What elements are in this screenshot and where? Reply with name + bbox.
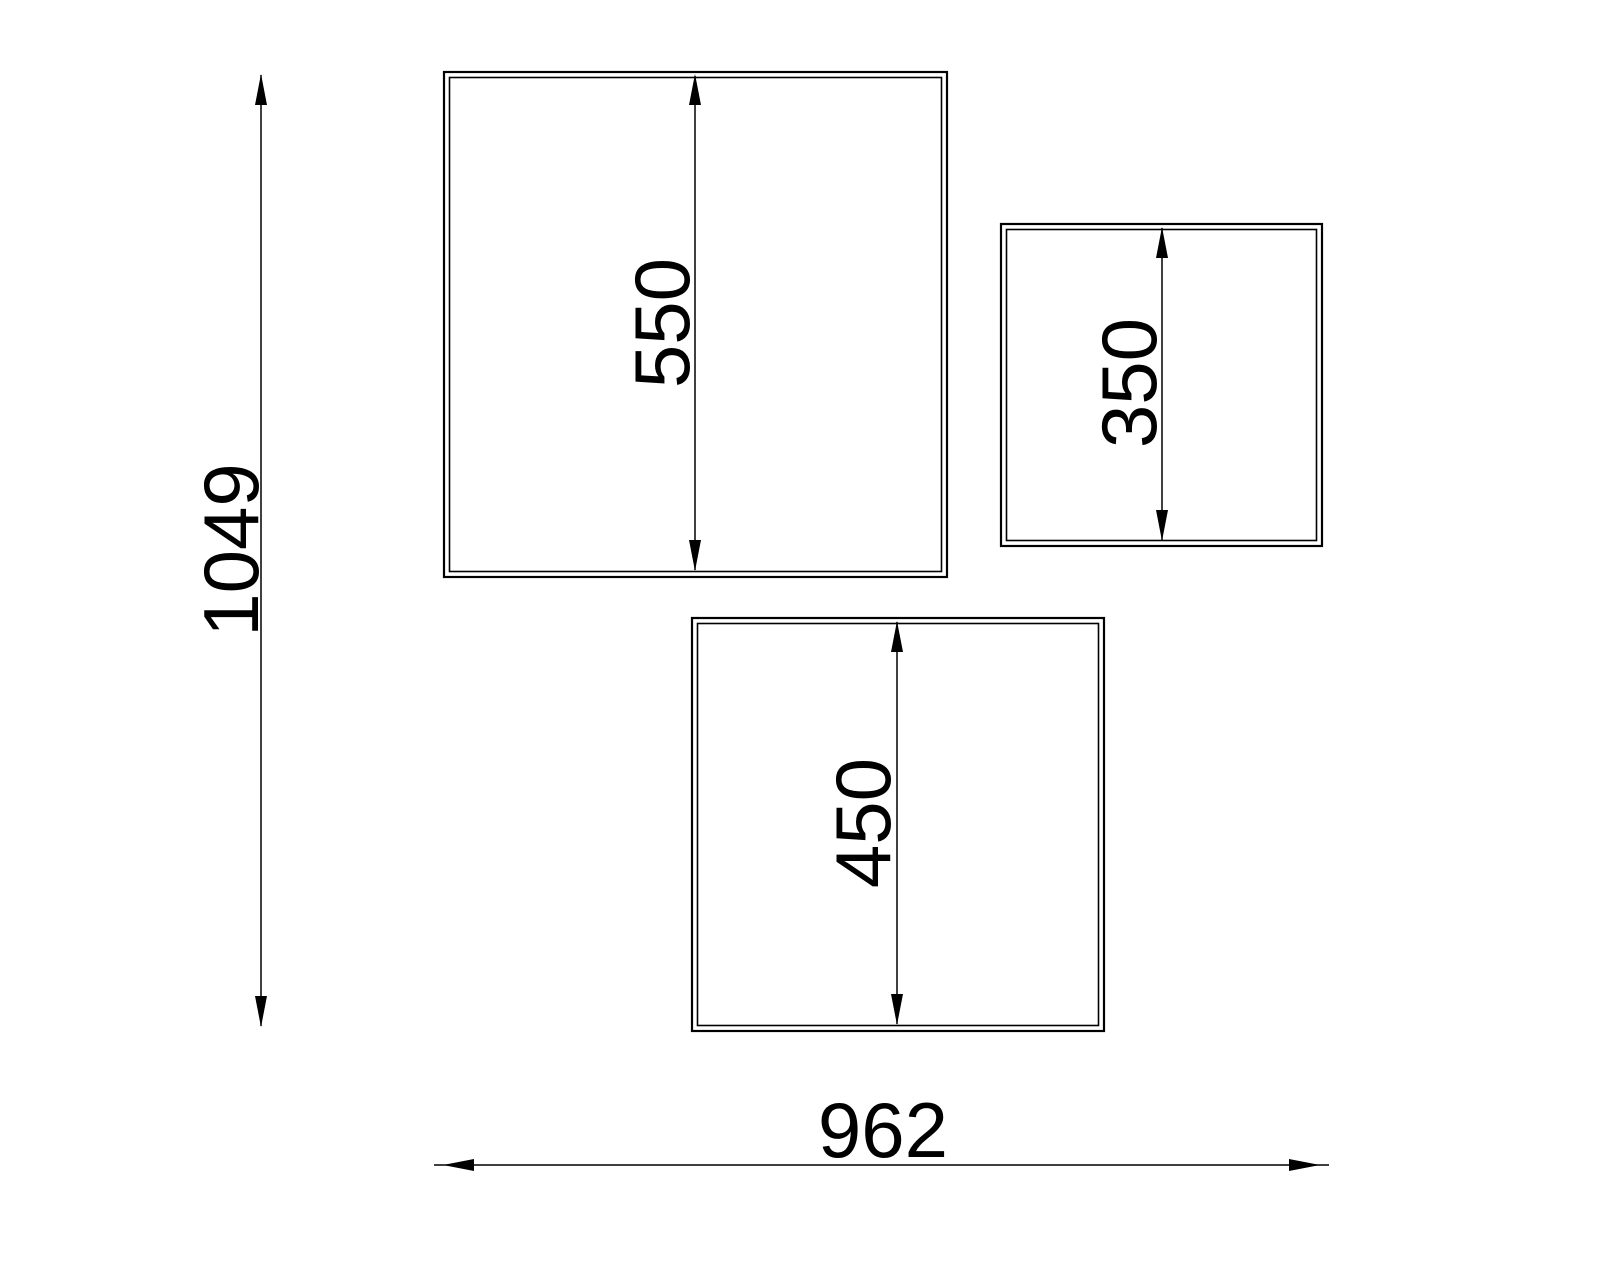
arrow-down-icon [255, 996, 267, 1027]
arrow-up-icon [1156, 227, 1168, 258]
arrow-up-icon [689, 74, 701, 105]
technical-drawing-canvas: 550 350 450 1049 962 [0, 0, 1600, 1280]
dimension-label-962: 962 [818, 1086, 948, 1174]
dimension-label-450: 450 [819, 758, 907, 888]
arrow-down-icon [689, 540, 701, 571]
dimension-overall-height: 1049 [187, 74, 275, 1027]
dimension-right-panel-height: 350 [1085, 227, 1173, 541]
dimension-label-1049: 1049 [187, 463, 275, 637]
dimension-label-350: 350 [1085, 318, 1173, 448]
arrow-up-icon [255, 74, 267, 105]
dimension-large-panel-height: 550 [618, 74, 706, 571]
arrow-down-icon [891, 994, 903, 1025]
arrow-left-icon [443, 1159, 474, 1171]
arrow-up-icon [891, 621, 903, 652]
arrow-down-icon [1156, 510, 1168, 541]
dimension-overall-width: 962 [434, 1086, 1329, 1174]
arrow-right-icon [1289, 1159, 1320, 1171]
dimension-bottom-panel-height: 450 [819, 621, 907, 1025]
dimension-label-550: 550 [618, 258, 706, 388]
